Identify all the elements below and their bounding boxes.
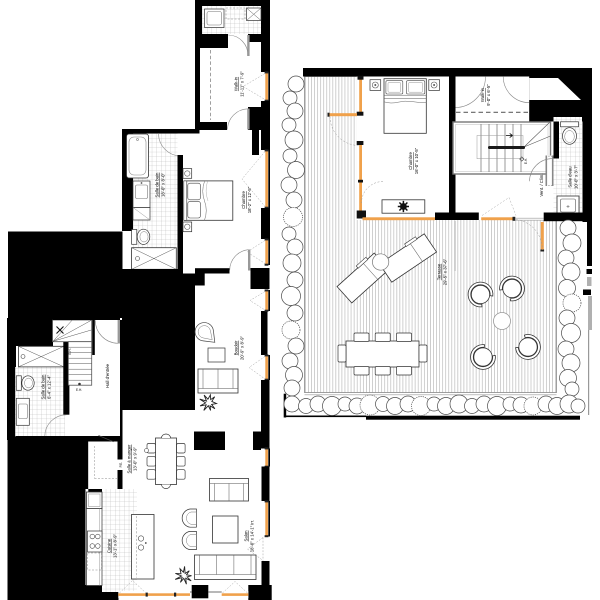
svg-text:Vent. / Clim.: Vent. / Clim. (539, 173, 544, 196)
svg-text:Cuisine: Cuisine (107, 538, 112, 553)
svg-text:18'-0" x 14'-1" irr.: 18'-0" x 14'-1" irr. (250, 520, 255, 552)
svg-text:10'-0" x 3'-7": 10'-0" x 3'-7" (574, 165, 579, 190)
svg-text:29'-5" x 37'-6": 29'-5" x 37'-6" (443, 258, 448, 285)
svg-text:Hall d'entrée: Hall d'entrée (105, 363, 110, 388)
svg-text:13'-1" x 8'-9": 13'-1" x 8'-9" (113, 534, 118, 559)
svg-text:Chambre: Chambre (408, 152, 413, 170)
svg-text:E.H.: E.H. (524, 158, 528, 164)
svg-text:Boudoir: Boudoir (234, 340, 239, 355)
svg-text:Salon: Salon (244, 530, 249, 542)
svg-text:E.H.: E.H. (68, 348, 72, 354)
svg-text:P.E.: P.E. (119, 462, 123, 468)
svg-text:18'-0" x 8'-0": 18'-0" x 8'-0" (161, 173, 166, 198)
svg-text:6'-4" x 12'-4": 6'-4" x 12'-4" (47, 375, 52, 400)
svg-text:18'-2" x 12'-5": 18'-2" x 12'-5" (247, 186, 252, 213)
svg-text:16'-0" x 10'-5": 16'-0" x 10'-5" (414, 147, 419, 174)
svg-text:Chambre: Chambre (241, 191, 246, 209)
svg-text:Salle à manger: Salle à manger (127, 444, 132, 473)
svg-text:Walk-in: Walk-in (480, 87, 485, 102)
svg-text:11'-11" x 7'-9": 11'-11" x 7'-9" (240, 71, 245, 97)
svg-text:9'-0" x 6'-5": 9'-0" x 6'-5" (486, 84, 491, 106)
svg-text:Salle de bain: Salle de bain (155, 172, 160, 197)
svg-text:20'-9" x 8'-9": 20'-9" x 8'-9" (240, 336, 245, 361)
svg-text:Salle d'eau: Salle d'eau (568, 166, 573, 188)
svg-text:E.H.: E.H. (76, 388, 82, 392)
svg-text:Salle de bain: Salle de bain (41, 374, 46, 399)
svg-text:Walk-in: Walk-in (234, 76, 239, 91)
svg-text:Terrasse: Terrasse (437, 263, 442, 280)
svg-text:13'-0" x 9'-9": 13'-0" x 9'-9" (133, 447, 138, 472)
